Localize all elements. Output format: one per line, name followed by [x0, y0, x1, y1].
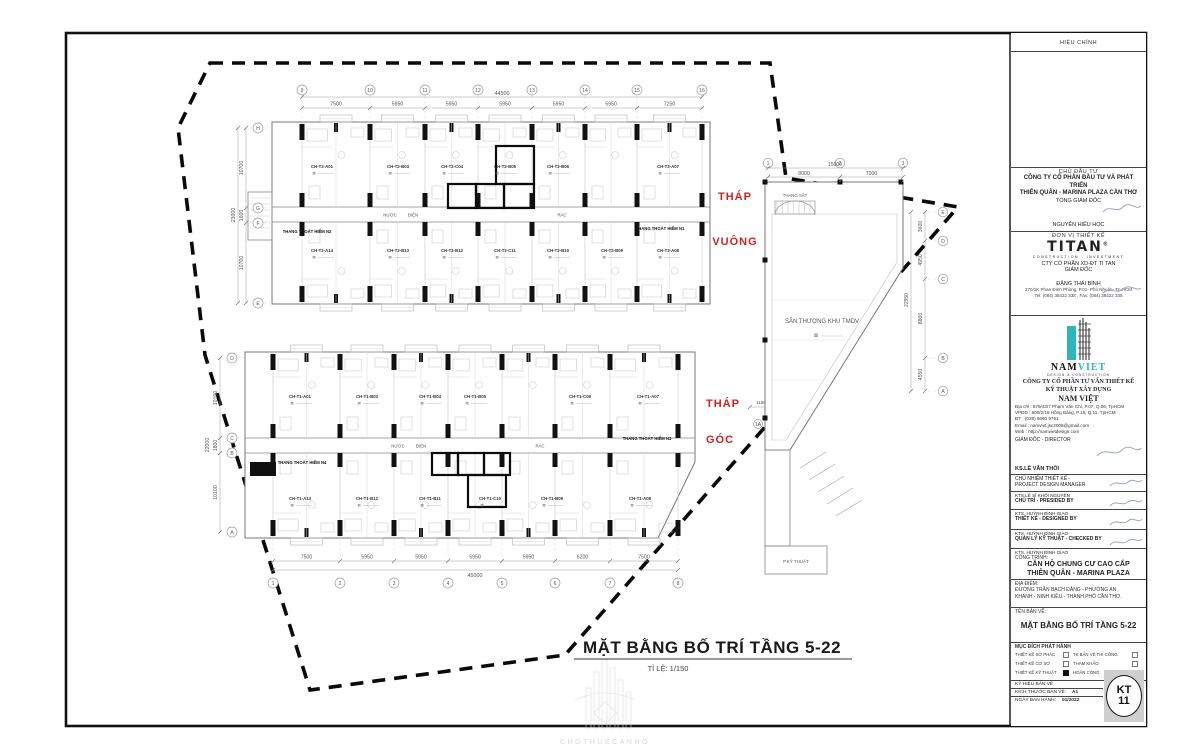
column-mark [583, 286, 588, 302]
issue-date-row: NGÀY BAN HÀNH:01/2022 [1011, 697, 1103, 704]
checked-row: KTS. HUỲNH ĐÌNH GIAO QUẢN LÝ KỸ THUẬT - … [1011, 530, 1146, 549]
column-mark [553, 354, 558, 370]
unit-label: CH-T2-B03 [387, 164, 410, 169]
dim-total: 45000 [468, 573, 483, 579]
purpose-item-label: THIẾT KẾ CƠ SỞ [1015, 661, 1050, 666]
tower-square-label: THÁP [718, 190, 752, 203]
dim-label: 5950 [361, 555, 373, 561]
dim-label: 7500 [330, 102, 342, 108]
steel-stair-label: THANG SẮT [783, 193, 808, 198]
dim-label: 7500 [301, 555, 313, 561]
column-mark [271, 354, 276, 370]
wing-stair-hatch [809, 464, 835, 480]
column-mark [446, 424, 451, 438]
titan-role: GIÁM ĐỐC [1015, 267, 1142, 273]
column-mark [500, 354, 505, 370]
wing-stair-hatch [818, 476, 844, 492]
column-mark [553, 453, 558, 467]
level-mark-icon: ⊠ [638, 401, 641, 406]
dim-label: 7250 [664, 102, 676, 108]
investor-section: CHỦ ĐẦU TƯ CÔNG TY CỔ PHẦN ĐẦU TƯ VÀ PHÁ… [1011, 168, 1146, 232]
column-mark [763, 258, 768, 263]
sheet-size-value: A1 [1072, 690, 1078, 695]
dim-label: 5950 [392, 102, 404, 108]
level-mark-icon: ⊠ [388, 171, 391, 176]
grid-bubble-label: G [256, 206, 260, 212]
purpose-item: THAM KHẢO [1073, 661, 1142, 667]
column-mark [476, 222, 481, 236]
grid-bubble-label: 3 [902, 161, 905, 167]
watermark-bar [586, 688, 591, 728]
column-mark [553, 424, 558, 438]
dim-label: 10700 [239, 256, 245, 271]
designed-row: KTS. HUỲNH ĐÌNH GIAO THIẾT KẾ - DESIGNED… [1011, 510, 1146, 530]
unit-label: CH-T1-A13 [289, 496, 312, 501]
dim-label: 7500 [638, 555, 650, 561]
unit-label: CH-T2-B13 [387, 248, 410, 253]
stair-label-block [250, 462, 276, 476]
column-mark [700, 222, 705, 236]
drawing-name: MẶT BẰNG BỐ TRÍ TẦNG 5-22 [1015, 621, 1142, 631]
column-mark [583, 222, 588, 236]
unit-label: CH-T2-C04 [441, 164, 464, 169]
unit-label: CH-T1-B11 [419, 496, 441, 501]
service-room-label: RÁC [557, 212, 566, 217]
sheet-size-row: KÍCH THƯỚC BẢN VẼ:A1 [1011, 689, 1103, 697]
column-mark [300, 193, 305, 207]
column-mark [608, 520, 613, 536]
designer-section: ĐƠN VỊ THIẾT KẾ TITAN® CONSTRUCTION - IN… [1011, 232, 1146, 316]
grid-bubble-label: 8 [677, 581, 680, 587]
wing-stair-hatch [800, 452, 826, 468]
unit-label: CH-T1-A07 [637, 394, 660, 399]
location-section: ĐỊA ĐIỂM: ĐƯỜNG TRẦN BẠCH ĐẰNG - PHƯỜNG … [1011, 580, 1146, 608]
unit-label: CH-T2-B10 [547, 248, 570, 253]
column-mark [500, 424, 505, 438]
grid-bubble-label: 15 [634, 88, 640, 94]
column-mark [676, 520, 681, 536]
column-mark [635, 286, 640, 302]
revision-section: HIỆU CHỈNH [1011, 33, 1146, 168]
sheet-code-bottom: 11 [1118, 696, 1130, 707]
unit-label: CH-T1-B09 [541, 496, 564, 501]
column-mark [423, 286, 428, 302]
grid-bubble-label: 13 [529, 88, 535, 94]
purpose-item-label: THAM KHẢO [1073, 661, 1099, 666]
column-mark [530, 222, 535, 236]
purpose-item-label: THIẾT KẾ SƠ PHÁC [1015, 652, 1055, 657]
column-mark [338, 520, 343, 536]
column-mark [676, 354, 681, 370]
level-mark-icon: ⊠ [542, 503, 545, 508]
watermark-logo [575, 660, 635, 728]
purpose-item: TK BẢN VẼ THI CÔNG [1073, 652, 1142, 658]
level-mark-icon: ⊠ [442, 255, 445, 260]
dim-label: 10100 [213, 485, 219, 500]
column-mark [763, 416, 768, 421]
level-mark-icon: ⊠ [548, 255, 551, 260]
grid-bubble-label: 12 [475, 88, 481, 94]
unit-label: CH-T2-B06 [547, 164, 570, 169]
service-room-label: NƯỚC [391, 443, 405, 448]
unit-label: CH-T2-C11 [494, 248, 516, 253]
grid-bubble-label: C [941, 277, 945, 283]
column-mark [700, 193, 705, 207]
dim-label: 1800 [213, 440, 219, 452]
grid-bubble-label: 1 [272, 581, 275, 587]
pm-row: CHỦ NHIỆM THIẾT KẾ -PROJECT DESIGN MANAG… [1011, 475, 1146, 492]
column-mark [446, 520, 451, 536]
column-mark [700, 286, 705, 302]
checkbox-icon [1063, 661, 1069, 667]
column-mark [608, 354, 613, 370]
column-mark [392, 424, 397, 438]
dim-label: 3600 [918, 221, 924, 233]
lower-slab-outline [245, 352, 695, 538]
column-mark [500, 520, 505, 536]
revision-header: HIỆU CHỈNH [1011, 34, 1146, 52]
dim-label: 7000 [866, 171, 878, 177]
tower-square-label: VUÔNG [712, 235, 757, 248]
dim-label: 8800 [918, 313, 924, 325]
stair-label: THANG THOÁT HIỂM N3 [623, 436, 672, 441]
signature-mark [1108, 536, 1144, 548]
location-text: ĐƯỜNG TRẦN BẠCH ĐẰNG - PHƯỜNG ANKHÁNH - … [1015, 587, 1142, 601]
level-mark-icon: ⊠ [420, 401, 423, 406]
signature-mark [1100, 202, 1144, 216]
column-mark [338, 424, 343, 438]
tech-room-label: P.KỸ THUẬT [783, 558, 809, 564]
grid-bubble-label: 14 [582, 88, 588, 94]
column-mark [392, 453, 397, 467]
grid-bubble-label: 1A [755, 422, 762, 428]
grid-bubble-label: 6 [554, 581, 557, 587]
column-mark [583, 124, 588, 140]
watermark-bar [602, 660, 607, 728]
level-mark-icon: ⊠ [388, 255, 391, 260]
namviet-signer: KS.LÊ VĂN THỐI [1015, 466, 1059, 472]
column-mark [553, 520, 558, 536]
tower-corner-label: THÁP [706, 397, 740, 410]
column-mark [423, 193, 428, 207]
column-mark [763, 180, 768, 185]
column-mark [423, 222, 428, 236]
column-mark [338, 453, 343, 467]
purpose-item-label: HOÀN CÔNG [1073, 670, 1100, 675]
unit-label: CH-T1-B03 [356, 394, 379, 399]
dim-label: 10100 [213, 391, 219, 406]
watermark-diamond [594, 702, 617, 725]
service-room-label: ĐIỆN [416, 443, 426, 448]
dim-label: 5950 [469, 555, 481, 561]
project-name: CĂN HỘ CHUNG CƯ CAO CẤPTHIÊN QUÂN - MARI… [1015, 561, 1142, 579]
unit-label: CH-T1-C10 [479, 496, 502, 501]
level-mark-icon: ⊠ [495, 255, 498, 260]
wing-outline [765, 182, 903, 450]
column-mark [271, 424, 276, 438]
checkbox-icon [1063, 652, 1069, 658]
service-room-label: ĐIỆN [408, 212, 418, 217]
level-mark-icon: ⊠ [570, 401, 573, 406]
dim-label: 5950 [415, 555, 427, 561]
column-mark [676, 453, 681, 467]
dim-label: 10700 [239, 161, 245, 176]
grid-bubble-label: 9 [301, 88, 304, 94]
grid-bubble-label: 7 [609, 581, 612, 587]
unit-label: CH-T2-B09 [601, 248, 624, 253]
signature-mark [1108, 477, 1144, 489]
grid-bubble-label: F [256, 221, 259, 227]
dim-label: 1600 [239, 210, 245, 222]
column-mark [635, 124, 640, 140]
tower-corner-label: GÓC [706, 433, 734, 446]
dim-label: 8000 [798, 171, 810, 177]
column-mark [446, 354, 451, 370]
dim-label: 5950 [523, 555, 535, 561]
unit-label: CH-T2-B05 [494, 164, 517, 169]
upper-slab-outline [272, 122, 710, 304]
purpose-item: THIẾT KẾ SƠ PHÁC [1015, 652, 1073, 658]
unit-label: CH-T1-B12 [356, 496, 379, 501]
level-mark-icon: ⊠ [420, 503, 423, 508]
watermark-bar [594, 672, 599, 728]
grid-bubble-label: 3 [393, 581, 396, 587]
project-section: KTS. HUỲNH ĐÌNH GIAO CÔNG TRÌNH: CĂN HỘ … [1011, 549, 1146, 580]
titan-logo-subtitle: CONSTRUCTION - INVESTMENT [1015, 255, 1142, 259]
column-mark [446, 453, 451, 467]
column-mark [635, 193, 640, 207]
dim-label: 5950 [446, 102, 458, 108]
purpose-item-label: TK BẢN VẼ THI CÔNG [1073, 652, 1118, 657]
checkbox-icon [1132, 661, 1138, 667]
dim-total: 44500 [495, 91, 510, 97]
level-mark-icon: ⊠ [465, 401, 468, 406]
column-mark [583, 193, 588, 207]
column-mark [368, 286, 373, 302]
titan-logo: TITAN® [1015, 239, 1142, 255]
wing-shaft [765, 450, 790, 546]
watermark-bar [618, 680, 623, 728]
column-mark [300, 286, 305, 302]
level-mark-icon: ⊠ [814, 333, 818, 339]
dim-label: 5950 [605, 102, 617, 108]
checkbox-checked-icon [1063, 670, 1069, 676]
grid-bubble-label: 5 [501, 581, 504, 587]
unit-label: CH-T2-A01 [311, 164, 334, 169]
column-mark [608, 453, 613, 467]
level-mark-icon: ⊠ [495, 171, 498, 176]
dim-label: 6200 [577, 555, 589, 561]
wing-stair-hatch [827, 488, 853, 504]
namviet-role: GIÁM ĐỐC - DIRECTOR [1015, 437, 1142, 443]
drawing-main-title: MẶT BẰNG BỐ TRÍ TẦNG 5-22 [583, 637, 841, 657]
column-mark [300, 124, 305, 140]
column-mark [530, 286, 535, 302]
column-mark [392, 354, 397, 370]
column-mark [368, 193, 373, 207]
level-mark-icon: ⊠ [658, 171, 661, 176]
grid-bubble-label: C [230, 436, 234, 442]
column-mark [338, 354, 343, 370]
unit-label: CH-T1-C06 [569, 394, 592, 399]
stair-label: THANG THOÁT HIỂM N4 [278, 460, 327, 465]
watermark-text: CHOTHUECANHO [560, 739, 650, 746]
signature-mark [1108, 516, 1144, 528]
column-mark [700, 124, 705, 140]
signature-mark [1094, 444, 1144, 460]
service-room-label: NƯỚC [383, 212, 397, 217]
level-mark-icon: ⊠ [290, 503, 293, 508]
column-mark [368, 222, 373, 236]
column-mark [392, 520, 397, 536]
column-mark [676, 424, 681, 438]
column-mark [500, 453, 505, 467]
issue-date-value: 01/2022 [1062, 698, 1079, 703]
drawing-name-section: TÊN BẢN VẼ: MẶT BẰNG BỐ TRÍ TẦNG 5-22 [1011, 608, 1146, 643]
title-block: HIỆU CHỈNH CHỦ ĐẦU TƯ CÔNG TY CỔ PHẦN ĐẦ… [1011, 33, 1146, 726]
investor-signer: NGUYỄN HIẾU HỌC [1011, 222, 1146, 228]
column-mark [368, 124, 373, 140]
unit-label: CH-T1-B04 [419, 394, 442, 399]
sheet-code-badge: KT 11 [1106, 675, 1142, 717]
namviet-logo-subtitle: DESIGN & CONSTRUCTION [1015, 373, 1142, 377]
dim-total: 22950 [904, 293, 910, 307]
drawing-sheet: CH-T2-A01⊠CH-T2-B03⊠CH-T2-C04⊠CH-T2-B05⊠… [0, 0, 1200, 750]
grid-bubble-label: D [941, 239, 945, 245]
column-mark [271, 520, 276, 536]
column-mark [530, 124, 535, 140]
unit-label: CH-T2-B12 [441, 248, 464, 253]
level-mark-icon: ⊠ [602, 255, 605, 260]
signature-mark [1100, 284, 1144, 297]
column-mark [763, 338, 768, 343]
investor-name: CÔNG TY CỔ PHẦN ĐẦU TƯ VÀ PHÁT TRIỂN THI… [1015, 175, 1142, 198]
drawing-header: TÊN BẢN VẼ: [1015, 609, 1142, 615]
dim-total: 23000 [231, 208, 237, 223]
dim-label: 4550 [918, 369, 924, 381]
dim-label: 4950 [918, 254, 924, 266]
purpose-item-label: THIẾT KẾ KỸ THUẬT [1015, 670, 1057, 675]
column-mark [476, 124, 481, 140]
terrace-label: SÂN THƯỢNG KHU TMDV [785, 318, 859, 325]
namviet-company: CÔNG TY CỔ PHẦN TƯ VẤN THIẾT KẾKỸ THUẬT … [1015, 379, 1142, 394]
stair-label: THANG THOÁT HIỂM N2 [283, 229, 332, 234]
level-mark-icon: ⊠ [658, 255, 661, 260]
stair-label: THANG THOÁT HIỂM N1 [636, 226, 685, 231]
namviet-section: NAMVIET DESIGN & CONSTRUCTION CÔNG TY CỔ… [1011, 316, 1146, 475]
dim-total: 22000 [205, 438, 211, 453]
grid-bubble-label: 4 [447, 581, 450, 587]
signature-mark [1108, 497, 1144, 509]
dim-total: 15000 [828, 162, 842, 168]
grid-bubble-label: H [256, 126, 260, 132]
column-mark [423, 124, 428, 140]
wing-stair-hatch [836, 500, 862, 516]
presided-row: KTS.LÊ SĨ KHÔI NGUYÊN CHỦ TRÌ - PRESIDED… [1011, 492, 1146, 510]
column-mark [476, 286, 481, 302]
purpose-item: THIẾT KẾ KỸ THUẬT [1015, 670, 1073, 676]
grid-bubble-label: 2 [339, 581, 342, 587]
grid-bubble-label: 1 [767, 161, 770, 167]
namviet-tower-teal [1067, 326, 1076, 360]
unit-label: CH-T1-A01 [289, 394, 312, 399]
unit-label: CH-T2-A07 [657, 164, 680, 169]
namviet-logo-word: NAMVIET [1015, 362, 1142, 373]
unit-label: CH-T2-A08 [657, 248, 680, 253]
purpose-item: THIẾT KẾ CƠ SỞ [1015, 661, 1073, 667]
level-mark-icon: ⊠ [357, 503, 360, 508]
column-mark [608, 424, 613, 438]
symbol-label: KÝ HIỆU BẢN VẼ [1011, 681, 1103, 689]
sheet-code-panel: KT 11 [1104, 670, 1144, 722]
level-mark-icon: ⊠ [480, 503, 483, 508]
namviet-address: Địa chỉ : 579/43/7 Phạm Văn Chí, P.07, Q… [1015, 404, 1142, 435]
dim-label: 5950 [499, 102, 511, 108]
checkbox-icon [1132, 652, 1138, 658]
grid-bubble-label: 10 [367, 88, 373, 94]
unit-label: CH-T2-A14 [311, 248, 334, 253]
unit-label: CH-T1-B05 [464, 394, 487, 399]
namviet-name: NAM VIỆT [1015, 394, 1142, 404]
grid-bubble-label: 16 [699, 88, 705, 94]
level-mark-icon: ⊠ [357, 401, 360, 406]
level-mark-icon: ⊠ [312, 255, 315, 260]
level-mark-icon: ⊠ [630, 503, 633, 508]
dim-label: 5950 [553, 102, 565, 108]
grid-bubble-label: D [230, 356, 234, 362]
level-mark-icon: ⊠ [548, 171, 551, 176]
service-room-label: RÁC [535, 443, 544, 448]
drawing-scale-label: TỈ LỆ: 1/150 [648, 664, 689, 673]
unit-label: CH-T1-A08 [629, 496, 652, 501]
level-mark-icon: ⊠ [290, 401, 293, 406]
grid-bubble-label: 11 [422, 88, 427, 94]
namviet-logo-icon [1015, 318, 1142, 362]
level-mark-icon: ⊠ [312, 171, 315, 176]
level-mark-icon: ⊠ [442, 171, 445, 176]
